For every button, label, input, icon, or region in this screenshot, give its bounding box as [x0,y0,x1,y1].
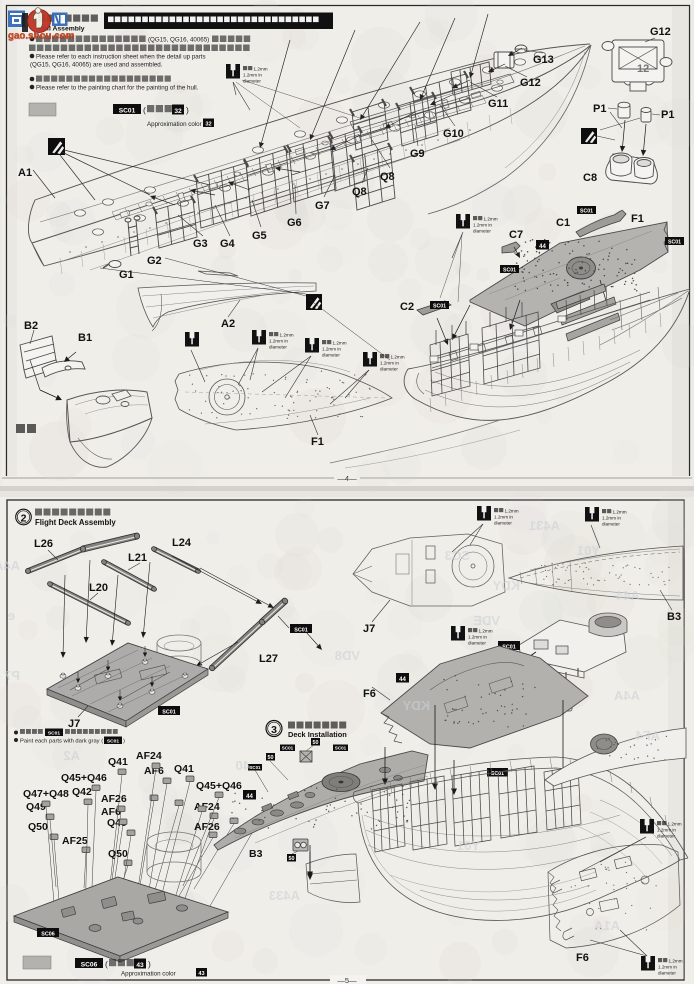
svg-text:1.2mm in: 1.2mm in [658,964,677,969]
svg-text:40: 40 [236,758,250,773]
svg-text:50: 50 [268,755,274,761]
svg-text:1.2mm: 1.2mm [668,821,682,826]
svg-text:G7: G7 [315,200,330,212]
svg-text:1.2mm in: 1.2mm in [657,827,676,832]
svg-text:B1: B1 [78,332,92,344]
svg-text:A2: A2 [221,318,235,330]
svg-text:diameter: diameter [658,970,676,975]
svg-text:A1: A1 [18,167,32,179]
svg-text:G10: G10 [443,128,464,140]
svg-text:(: ( [143,105,146,115]
svg-text:G12: G12 [650,26,671,38]
svg-text:L24: L24 [172,537,192,549]
svg-text:3: 3 [271,724,277,736]
svg-text:diameter: diameter [494,520,512,525]
svg-text:Flight Deck Assembly: Flight Deck Assembly [35,518,116,527]
svg-text:G9: G9 [410,148,425,160]
svg-text:P1: P1 [593,103,606,115]
svg-text:Deck Installation: Deck Installation [288,730,347,739]
svg-text:Paint each parts with dark gra: Paint each parts with dark gray ( [20,739,103,745]
svg-text:Please refer to each instructi: Please refer to each instruction sheet w… [36,54,206,61]
svg-text:SC01: SC01 [294,627,308,633]
svg-text:1.2mm: 1.2mm [505,508,519,513]
svg-text:2: 2 [21,513,27,525]
svg-text:1.2mm: 1.2mm [391,354,405,359]
svg-text:Q45+Q46: Q45+Q46 [196,780,242,792]
svg-text:1.2mm in: 1.2mm in [473,222,492,227]
svg-text:F6: F6 [576,952,589,964]
svg-text:P7: P7 [4,668,20,683]
svg-text:(QG15, QG16, 40065): (QG15, QG16, 40065) [148,37,209,44]
svg-text:SC06: SC06 [41,931,55,937]
svg-text:SC06: SC06 [81,961,98,968]
svg-text:G3: G3 [193,238,208,250]
svg-text:A2: A2 [63,748,80,763]
svg-text:1.2mm in: 1.2mm in [243,72,262,77]
svg-text:SC01: SC01 [668,239,681,245]
svg-text:Q45+Q46: Q45+Q46 [61,772,107,784]
svg-text:Y01: Y01 [457,838,480,853]
svg-text:43: 43 [198,971,204,977]
svg-text:Approximation color: Approximation color [147,121,202,128]
svg-text:44: 44 [399,677,406,683]
svg-text:1.2mm in: 1.2mm in [494,514,513,519]
svg-text:1.2mm: 1.2mm [254,66,268,71]
svg-text:SC01: SC01 [335,745,347,750]
svg-text:1.2mm: 1.2mm [333,340,347,345]
svg-text:Please refer to the painting c: Please refer to the painting chart for t… [36,85,199,92]
svg-text:32: 32 [205,121,211,127]
svg-text:A1A: A1A [593,918,620,933]
svg-text:1.2mm in: 1.2mm in [468,634,487,639]
svg-text:L27: L27 [259,653,278,665]
svg-text:1.2mm: 1.2mm [479,628,493,633]
svg-text:AF24: AF24 [136,750,162,762]
svg-text:): ) [123,739,125,745]
svg-text:G6: G6 [287,217,302,229]
svg-text:gao.shou.com: gao.shou.com [8,31,75,42]
svg-text:C7: C7 [509,229,523,241]
svg-text:L21: L21 [128,552,147,564]
svg-text:VDE: VDE [473,613,500,628]
svg-text:G11: G11 [488,98,508,110]
svg-text:F6: F6 [363,688,376,700]
svg-text:(QG15, QG16, 40065) are used a: (QG15, QG16, 40065) are used and assembl… [30,62,163,69]
svg-text:A433: A433 [269,888,300,903]
svg-text:1.2mm in: 1.2mm in [322,346,341,351]
svg-text:G12: G12 [520,77,541,89]
svg-text:50: 50 [313,740,319,746]
svg-text:—5—: —5— [337,976,357,984]
svg-text:G4: G4 [220,238,236,250]
svg-text:—4—: —4— [337,474,357,483]
svg-text:B2: B2 [24,320,38,332]
svg-text:A44: A44 [615,588,640,603]
svg-text:e: e [8,608,15,623]
svg-text:diameter: diameter [243,78,261,83]
svg-text:C2: C2 [400,301,414,313]
svg-text:KDY: KDY [492,578,520,593]
svg-text:G5: G5 [252,230,267,242]
svg-text:C1: C1 [556,217,570,229]
svg-text:Q47+Q48: Q47+Q48 [23,788,69,800]
svg-text:SC01: SC01 [580,208,593,214]
svg-text:SC01: SC01 [433,303,446,309]
svg-text:diameter: diameter [380,366,398,371]
svg-text:G2: G2 [147,255,162,267]
svg-text:J7: J7 [68,718,80,730]
svg-text:B3: B3 [249,848,263,860]
svg-text:B3: B3 [667,611,681,623]
svg-text:AF4: AF4 [635,728,660,743]
svg-text:diameter: diameter [657,833,675,838]
svg-text:1.2mm in: 1.2mm in [269,338,288,343]
svg-text:): ) [186,105,189,115]
svg-text:diameter: diameter [602,521,620,526]
svg-text:(: ( [105,959,108,969]
svg-text:SC01: SC01 [48,730,61,736]
svg-text:diameter: diameter [468,640,486,645]
svg-text:A431: A431 [529,518,560,533]
svg-text:43: 43 [136,962,144,969]
svg-text:1.2mm: 1.2mm [280,332,294,337]
svg-text:L20: L20 [89,582,108,594]
svg-text:diameter: diameter [473,228,491,233]
svg-text:diameter: diameter [322,352,340,357]
svg-text:1.2mm in: 1.2mm in [380,360,399,365]
svg-text:A4A: A4A [0,558,20,573]
svg-text:KDY: KDY [402,698,430,713]
svg-text:P1: P1 [661,109,674,121]
svg-text:44: 44 [246,794,253,800]
svg-text:SC01: SC01 [162,709,176,715]
svg-text:G13: G13 [533,54,554,66]
svg-text:Q8: Q8 [380,171,395,183]
svg-text:SC01: SC01 [503,267,516,273]
svg-text:1.2mm: 1.2mm [613,509,627,514]
svg-text:Q41: Q41 [108,756,128,768]
svg-text:AF25: AF25 [62,835,88,847]
svg-text:): ) [148,959,151,969]
svg-text:SC01: SC01 [282,745,294,750]
svg-text:12: 12 [637,63,649,75]
svg-text:F1: F1 [631,213,644,225]
svg-text:SC3: SC3 [445,548,470,563]
svg-text:diameter: diameter [269,344,287,349]
svg-text:50: 50 [289,856,295,862]
svg-text:VD8: VD8 [335,648,360,663]
svg-text:1.2mm: 1.2mm [484,216,498,221]
svg-text:C8: C8 [583,172,597,184]
svg-text:SC01: SC01 [107,738,120,744]
svg-text:32: 32 [174,108,182,115]
svg-text:L26: L26 [34,538,53,550]
svg-text:Y01: Y01 [577,543,600,558]
svg-text:Q50: Q50 [28,821,48,833]
svg-text:A4A: A4A [613,688,640,703]
svg-text:F1: F1 [311,436,324,448]
svg-text:SC01: SC01 [119,107,136,114]
svg-text:1.2mm in: 1.2mm in [602,515,621,520]
svg-text:Approximation color: Approximation color [121,971,176,978]
svg-text:J7: J7 [363,623,375,635]
svg-text:SC01: SC01 [250,765,262,770]
svg-text:Q42: Q42 [72,786,92,798]
svg-text:1.2mm: 1.2mm [669,958,683,963]
svg-text:AF26: AF26 [101,793,127,805]
svg-text:Q8: Q8 [352,186,367,198]
svg-text:Q41: Q41 [174,763,194,775]
svg-text:44: 44 [539,244,546,250]
